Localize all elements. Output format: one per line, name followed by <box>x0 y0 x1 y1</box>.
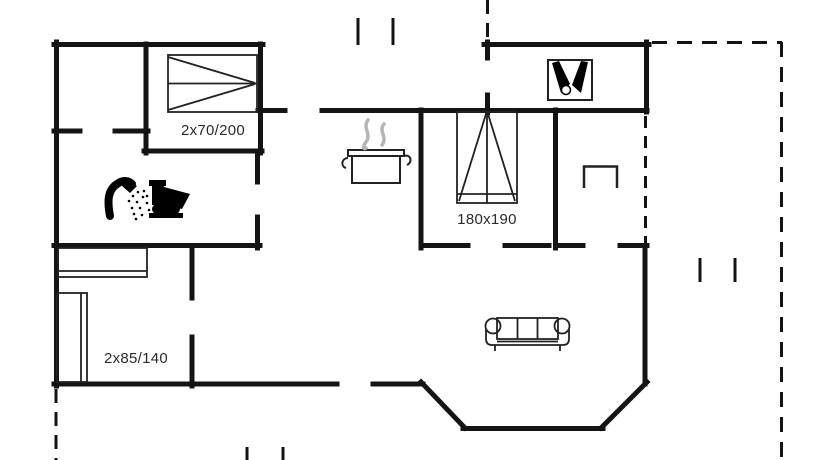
steam-icon <box>364 120 384 149</box>
double-bed-icon <box>168 55 257 112</box>
bed-180x190-icon <box>457 112 517 203</box>
bed-bunk-dimension-label: 2x85/140 <box>81 350 191 367</box>
bed-double-dimension-label: 2x70/200 <box>158 122 268 139</box>
wine-bottles-icon <box>548 60 592 100</box>
bed-master-dimension-label: 180x190 <box>432 211 542 228</box>
toilet-icon <box>149 180 190 218</box>
shower-icon <box>108 179 150 220</box>
opening-tick-marks <box>247 18 735 460</box>
shower-spray-dots <box>128 190 151 221</box>
floor-plan: 2x70/200 180x190 2x85/140 <box>0 0 834 460</box>
step-niche-icon <box>584 167 617 189</box>
floor-plan-drawing <box>0 0 834 460</box>
sofa-icon <box>486 318 570 351</box>
cooking-pot-icon <box>342 150 410 183</box>
